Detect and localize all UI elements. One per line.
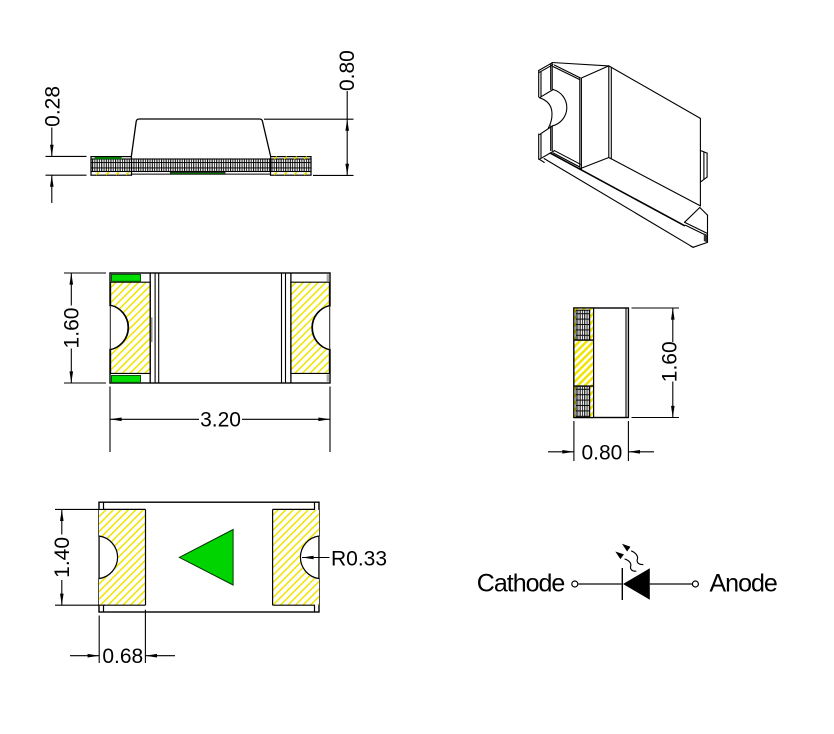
svg-text:1.60: 1.60 <box>659 341 682 382</box>
svg-text:0.80: 0.80 <box>581 441 622 464</box>
svg-text:3.20: 3.20 <box>200 409 241 432</box>
svg-text:Cathode: Cathode <box>477 569 565 597</box>
svg-text:1.40: 1.40 <box>51 537 74 578</box>
svg-text:0.68: 0.68 <box>102 645 143 668</box>
svg-text:1.60: 1.60 <box>61 308 84 349</box>
svg-text:0.28: 0.28 <box>42 86 65 127</box>
svg-text:0.80: 0.80 <box>336 50 359 91</box>
svg-text:Anode: Anode <box>710 569 777 597</box>
svg-text:R0.33: R0.33 <box>331 547 387 570</box>
